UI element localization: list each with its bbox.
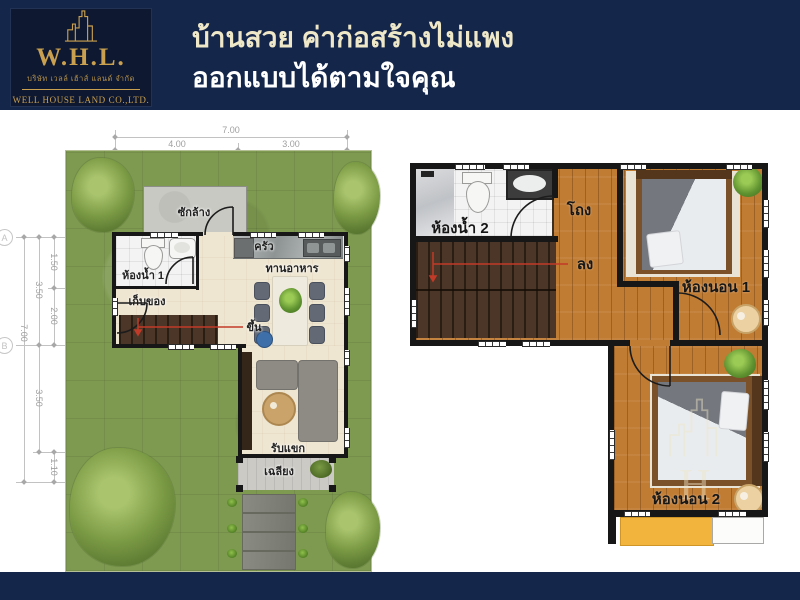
label-kitchen: ครัว <box>254 237 273 255</box>
dim-marker <box>344 134 350 140</box>
bedroom1-plant <box>733 167 763 197</box>
sofa-chaise <box>256 360 298 390</box>
window <box>112 298 118 316</box>
bed2-headboard <box>752 376 762 486</box>
dim-label-total-width: 7.00 <box>222 125 240 135</box>
dim-marker <box>51 234 57 240</box>
company-logo: W.H.L. บริษัท เวลล์ เฮ้าส์ แลนด์ จำกัด W… <box>10 8 152 107</box>
porch-plant <box>310 460 332 478</box>
dim-label-h-bottom: 1.10 <box>49 458 59 476</box>
window <box>763 432 769 462</box>
marketing-slide: W.H.L. บริษัท เวลล์ เฮ้าส์ แลนด์ จำกัด W… <box>0 0 800 600</box>
logo-english-name: WELL HOUSE LAND CO.,LTD. <box>13 95 150 105</box>
walkway-bush <box>298 498 308 507</box>
bed1-headboard <box>636 170 732 179</box>
label-hall: โถง <box>567 198 591 222</box>
bedroom2-plant <box>724 349 756 378</box>
dim-marker <box>112 134 118 140</box>
header-bar: W.H.L. บริษัท เวลล์ เฮ้าส์ แลนด์ จำกัด W… <box>0 0 800 110</box>
basin <box>513 175 546 192</box>
label-bathroom1: ห้องน้ำ 1 <box>122 266 164 284</box>
stairs-second-floor <box>416 242 556 338</box>
wall <box>410 340 768 346</box>
grid-marker-a: A <box>0 229 13 246</box>
window <box>298 232 324 238</box>
wall <box>608 510 616 544</box>
dim-label-h-upper: 3.50 <box>34 281 44 299</box>
dim-marker <box>51 342 57 348</box>
window <box>455 164 485 170</box>
stair-landing-line <box>416 289 556 291</box>
window <box>763 200 769 228</box>
window <box>344 350 350 366</box>
dim-line <box>115 137 347 138</box>
window <box>620 164 646 170</box>
logo-thai-name: บริษัท เวลล์ เฮ้าส์ แลนด์ จำกัด <box>27 73 135 85</box>
walkway-bush <box>298 549 308 558</box>
tree <box>326 492 380 568</box>
dim-marker <box>51 449 57 455</box>
stove <box>234 238 254 258</box>
logo-divider <box>22 89 140 90</box>
window <box>522 341 550 347</box>
dim-label-width-left: 4.00 <box>168 139 186 149</box>
bath-basin-unit <box>506 169 554 200</box>
slide-title-line2: ออกแบบได้ตามใจคุณ <box>192 56 456 100</box>
porch-post <box>236 485 243 492</box>
label-storage: เก็บของ <box>129 292 166 310</box>
window <box>763 250 769 278</box>
label-bathroom2: ห้องน้ำ 2 <box>431 216 488 240</box>
table-item <box>270 402 277 409</box>
label-stairs-up: ขึ้น <box>246 318 261 336</box>
wall <box>196 234 199 290</box>
porch-post <box>329 485 336 492</box>
walkway-bush <box>227 549 237 558</box>
window <box>503 164 529 170</box>
dim-marker <box>36 449 42 455</box>
wall <box>552 169 558 198</box>
wall <box>617 281 679 287</box>
walkway-bush <box>227 524 237 533</box>
logo-abbreviation: W.H.L. <box>36 45 126 70</box>
tree <box>72 158 134 232</box>
dining-chair <box>309 282 325 300</box>
window <box>210 344 236 350</box>
dining-chair <box>254 282 270 300</box>
bed1-pillow <box>646 230 684 268</box>
stairs-first-floor <box>119 315 218 345</box>
awning <box>620 517 714 546</box>
label-bedroom1: ห้องนอน 1 <box>682 275 750 299</box>
window <box>344 246 350 262</box>
dim-label-width-right: 3.00 <box>282 139 300 149</box>
shower-head <box>421 171 434 177</box>
dim-marker <box>51 285 57 291</box>
wall <box>114 286 199 289</box>
window <box>726 164 752 170</box>
balcony <box>712 517 764 544</box>
dim-marker <box>36 234 42 240</box>
sink-basin <box>307 243 319 253</box>
window <box>150 232 178 238</box>
window <box>168 344 194 350</box>
window <box>609 430 615 460</box>
window <box>763 380 769 410</box>
tree <box>70 448 175 566</box>
wall <box>608 340 614 517</box>
window <box>344 288 350 316</box>
window <box>478 341 506 347</box>
tv-cabinet <box>242 352 252 450</box>
walkway-bush <box>298 524 308 533</box>
dining-chair <box>309 304 325 322</box>
coffee-table <box>262 392 296 426</box>
sink-basin <box>323 243 335 253</box>
walkway-slab <box>242 532 296 551</box>
dim-label-h-u2: 2.00 <box>49 307 59 325</box>
label-porch: เฉลียง <box>264 462 294 480</box>
door-leaf-wall-stub <box>673 287 679 340</box>
cup <box>740 492 748 500</box>
table-plant <box>279 288 302 313</box>
wall <box>238 344 242 458</box>
slide-title-line1: บ้านสวย ค่าก่อสร้างไม่แพง <box>192 16 514 60</box>
walkway-slab <box>242 551 296 570</box>
walkway-slab <box>242 513 296 532</box>
dim-marker <box>21 479 27 485</box>
bedroom1-side-table <box>731 304 761 334</box>
dim-line <box>24 237 25 482</box>
bathroom-sink <box>169 238 196 259</box>
dim-marker <box>51 479 57 485</box>
label-bedroom2: ห้องนอน 2 <box>652 487 720 511</box>
dim-label-h-lower: 3.50 <box>34 389 44 407</box>
wall <box>617 169 623 287</box>
label-dining: ทานอาหาร <box>265 259 318 277</box>
dim-marker <box>21 234 27 240</box>
wall <box>112 232 116 348</box>
window <box>411 300 417 328</box>
kitchen-sink <box>303 239 341 257</box>
watermark-building-icon <box>650 396 740 460</box>
footer-bar <box>0 572 800 600</box>
dining-chair <box>309 326 325 344</box>
window <box>763 300 769 326</box>
window <box>344 428 350 448</box>
dim-marker <box>36 342 42 348</box>
sink-bowl <box>174 242 190 253</box>
door-opening <box>203 232 233 236</box>
wall <box>344 232 348 458</box>
dim-label-h-u1: 1.50 <box>49 253 59 271</box>
door-opening <box>630 340 670 346</box>
tree <box>334 162 380 234</box>
label-stairs-down: ลง <box>577 252 594 276</box>
dim-label-h-total: 7.00 <box>19 324 29 342</box>
walkway-bush <box>227 498 237 507</box>
grid-marker-b: B <box>0 337 13 354</box>
label-laundry: ซักล้าง <box>178 203 210 221</box>
label-living: รับแขก <box>271 439 305 457</box>
walkway-slab <box>242 494 296 513</box>
building-skyline-icon <box>62 9 100 43</box>
sofa-main <box>298 360 338 442</box>
cup <box>737 312 745 320</box>
